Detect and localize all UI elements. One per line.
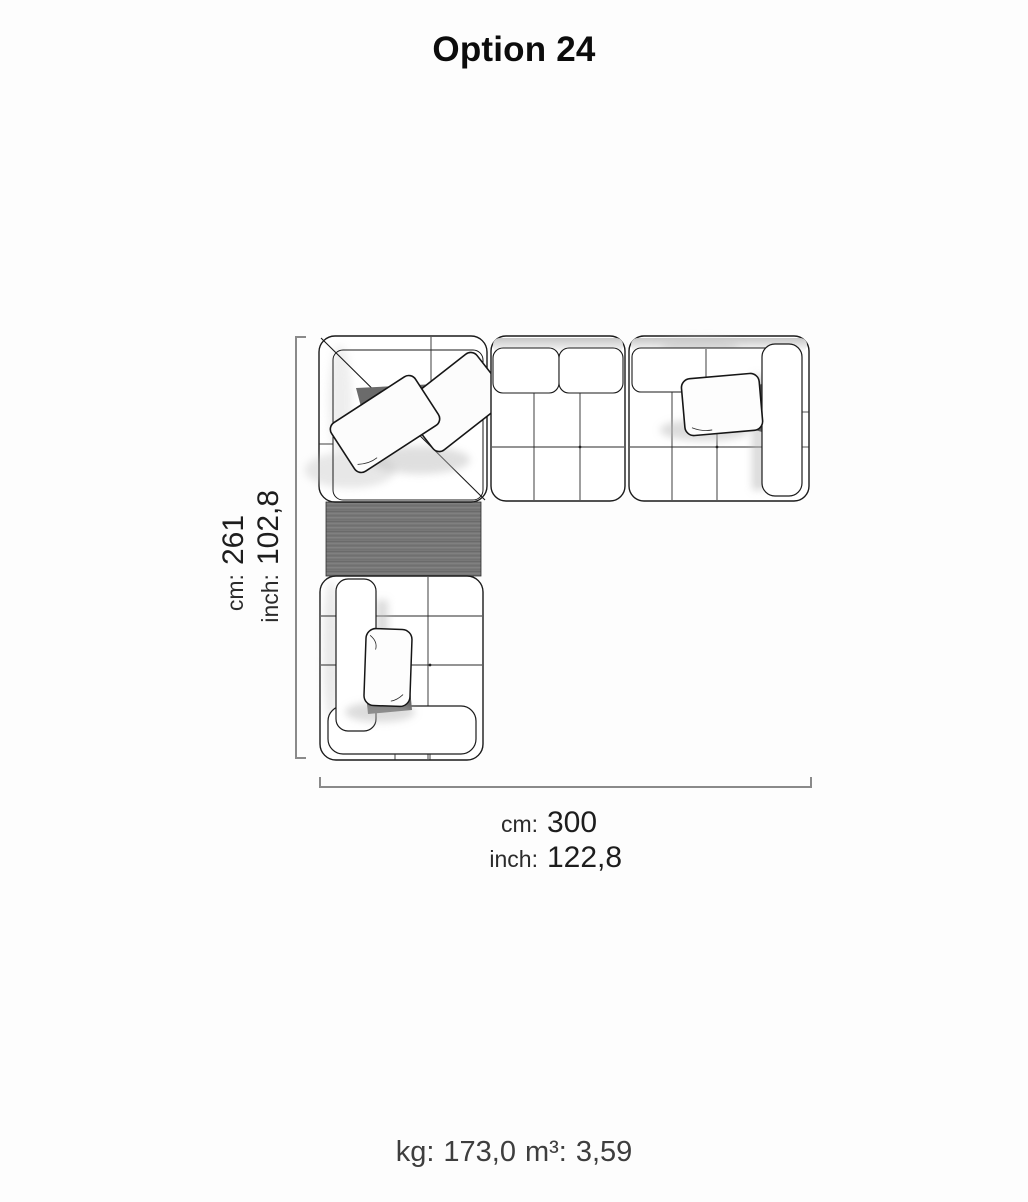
width-cm-unit: cm: (476, 808, 538, 841)
bottom-pillow (364, 628, 413, 707)
volume-value: 3,59 (576, 1136, 632, 1169)
middle-module (491, 336, 625, 501)
height-inch-unit: inch: (254, 574, 287, 636)
right-chaise-module (629, 336, 809, 501)
weight-value: 173,0 (443, 1136, 516, 1169)
weight-volume-stats: kg: 173,0 m³: 3,59 (396, 1136, 633, 1169)
height-inch-value: 102,8 (252, 490, 285, 565)
height-inch-row: inch: 102,8 (252, 490, 287, 636)
height-dimension-line (296, 337, 306, 758)
volume-label: m³: (525, 1136, 567, 1169)
width-dimension-line (320, 777, 811, 787)
width-inch-unit: inch: (476, 843, 538, 876)
corner-wood-table (326, 502, 481, 576)
corner-module (305, 336, 510, 502)
back-cushion (493, 348, 559, 393)
page-title: Option 24 (0, 30, 1028, 70)
height-cm-unit: cm: (219, 574, 252, 636)
width-inch-value: 122,8 (547, 841, 622, 874)
width-cm-value: 300 (547, 806, 597, 839)
height-cm-row: cm: 261 (217, 490, 252, 636)
width-dimension-label: cm: 300 inch: 122,8 (476, 806, 622, 876)
product-dimensions-page: Option 24 (0, 0, 1028, 1202)
bottom-chaise-module (320, 576, 483, 760)
sofa-top-view-diagram (285, 320, 825, 800)
right-pillow (681, 373, 764, 437)
height-dimension-label: cm: 261 inch: 102,8 (217, 490, 287, 636)
back-cushion (559, 348, 623, 393)
right-armrest (762, 344, 802, 496)
height-cm-value: 261 (217, 515, 250, 565)
width-cm-row: cm: 300 (476, 806, 622, 841)
width-inch-row: inch: 122,8 (476, 841, 622, 876)
weight-label: kg: (396, 1136, 435, 1169)
